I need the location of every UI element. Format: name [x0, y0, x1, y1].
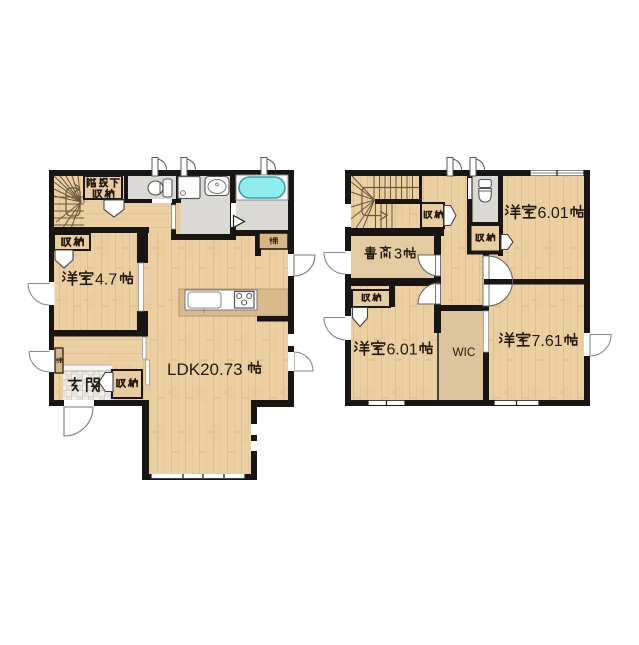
svg-text:7.61: 7.61 [532, 333, 563, 350]
svg-text:6.01: 6.01 [387, 342, 418, 359]
svg-text:LDK20.73: LDK20.73 [167, 360, 243, 379]
svg-text:6.01: 6.01 [538, 205, 569, 222]
svg-text:4.7: 4.7 [95, 272, 117, 289]
svg-text:3: 3 [394, 247, 402, 263]
svg-text:WIC: WIC [453, 345, 476, 359]
